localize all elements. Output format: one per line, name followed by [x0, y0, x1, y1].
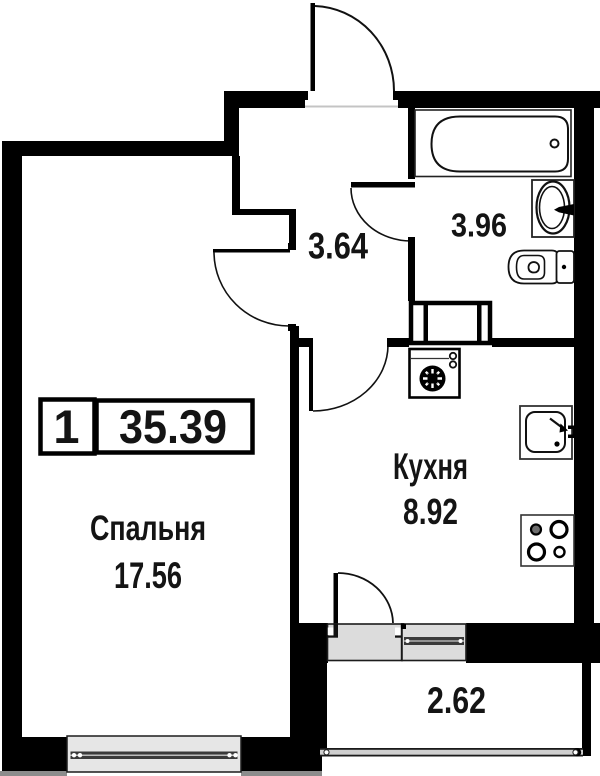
svg-text:3.96: 3.96: [451, 207, 507, 244]
svg-text:3.64: 3.64: [308, 226, 368, 267]
svg-text:Спальня: Спальня: [90, 509, 206, 548]
svg-text:35.39: 35.39: [119, 400, 227, 453]
svg-text:2.62: 2.62: [427, 680, 486, 721]
svg-text:1: 1: [53, 400, 79, 453]
svg-text:8.92: 8.92: [403, 491, 458, 532]
svg-text:Кухня: Кухня: [393, 446, 468, 487]
svg-text:17.56: 17.56: [114, 555, 182, 596]
